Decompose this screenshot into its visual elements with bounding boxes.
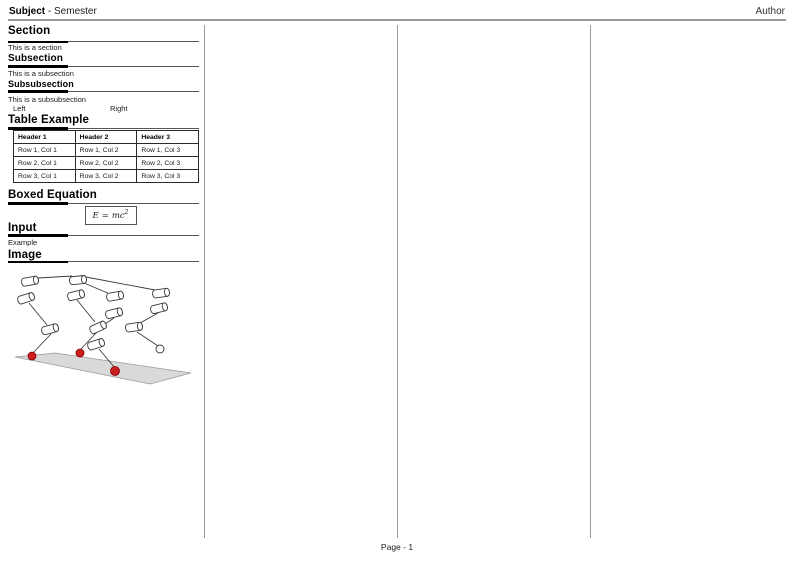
foot-contact-point bbox=[76, 349, 84, 357]
column-separator-1 bbox=[204, 25, 205, 538]
column-separator-2 bbox=[397, 25, 398, 538]
equation-relation: = bbox=[99, 211, 112, 221]
lifted-foot-point bbox=[156, 345, 164, 353]
subsubsection-heading: Subsubsection bbox=[8, 79, 199, 92]
table-header-cell: Header 3 bbox=[137, 131, 199, 144]
page-number: Page - 1 bbox=[0, 542, 794, 552]
foot-contact-point bbox=[111, 367, 120, 376]
equation-exponent: 2 bbox=[125, 209, 129, 216]
image-heading-text: Image bbox=[8, 249, 42, 261]
example-table: Header 1 Header 2 Header 3 Row 1, Col 1 … bbox=[13, 130, 199, 183]
subsubsection-heading-text: Subsubsection bbox=[8, 79, 74, 89]
table-row: Row 3, Col 1 Row 3, Col 2 Row 3, Col 3 bbox=[14, 170, 199, 183]
boxed-equation-heading: Boxed Equation bbox=[8, 189, 199, 204]
table-row: Row 2, Col 1 Row 2, Col 2 Row 2, Col 3 bbox=[14, 157, 199, 170]
input-heading-rule bbox=[8, 235, 199, 236]
subsection-heading-text: Subsection bbox=[8, 53, 63, 64]
input-body: Example bbox=[8, 238, 37, 247]
table-example-heading-rule bbox=[8, 128, 199, 129]
table-cell: Row 3, Col 2 bbox=[75, 170, 137, 183]
image-heading-rule bbox=[8, 261, 199, 262]
table-cell: Row 1, Col 3 bbox=[137, 144, 199, 157]
input-heading-text: Input bbox=[8, 222, 37, 234]
table-cell: Row 3, Col 3 bbox=[137, 170, 199, 183]
table-row: Row 1, Col 1 Row 1, Col 2 Row 1, Col 3 bbox=[14, 144, 199, 157]
column-1: Section This is a section Subsection Thi… bbox=[8, 25, 199, 540]
subsubsection-heading-rule bbox=[8, 91, 199, 92]
two-column-demo: Left Right bbox=[8, 104, 199, 114]
table-cell: Row 3, Col 1 bbox=[14, 170, 76, 183]
image-heading: Image bbox=[8, 249, 199, 262]
robot-figure-svg bbox=[5, 263, 200, 391]
table-example-heading: Table Example bbox=[8, 114, 199, 129]
header-rule bbox=[8, 19, 786, 21]
table-cell: Row 2, Col 1 bbox=[14, 157, 76, 170]
right-column-text: Right bbox=[110, 104, 128, 113]
table-cell: Row 2, Col 2 bbox=[75, 157, 137, 170]
section-body: This is a section bbox=[8, 43, 62, 52]
document-title: Subject - Semester bbox=[9, 6, 97, 17]
table-cell: Row 1, Col 2 bbox=[75, 144, 137, 157]
foot-contact-point bbox=[28, 352, 36, 360]
table-header-row: Header 1 Header 2 Header 3 bbox=[14, 131, 199, 144]
table-cell: Row 2, Col 3 bbox=[137, 157, 199, 170]
table-header-cell: Header 1 bbox=[14, 131, 76, 144]
boxed-equation-heading-rule bbox=[8, 203, 199, 204]
subsection-heading: Subsection bbox=[8, 53, 199, 67]
subsubsection-body: This is a subsubsection bbox=[8, 95, 86, 104]
boxed-equation-heading-text: Boxed Equation bbox=[8, 189, 97, 201]
left-column-text: Left bbox=[13, 104, 26, 113]
semester-label: - Semester bbox=[48, 6, 97, 17]
subject-label: Subject bbox=[9, 6, 45, 17]
section-heading: Section bbox=[8, 25, 199, 42]
author-label: Author bbox=[756, 6, 785, 17]
document-page: { "header": { "subject": "Subject", "tit… bbox=[0, 0, 794, 561]
subsection-body: This is a subsection bbox=[8, 69, 74, 78]
equation-rhs: mc bbox=[112, 211, 125, 221]
equation-lhs: E bbox=[93, 211, 99, 221]
table-cell: Row 1, Col 1 bbox=[14, 144, 76, 157]
table-example-heading-text: Table Example bbox=[8, 114, 89, 126]
ground-plane bbox=[15, 353, 191, 384]
subsection-heading-rule bbox=[8, 66, 199, 67]
input-heading: Input bbox=[8, 222, 199, 236]
robot-figure bbox=[5, 263, 200, 391]
section-heading-rule bbox=[8, 41, 199, 42]
section-heading-text: Section bbox=[8, 25, 50, 37]
column-separator-3 bbox=[590, 25, 591, 538]
table-header-cell: Header 2 bbox=[75, 131, 137, 144]
